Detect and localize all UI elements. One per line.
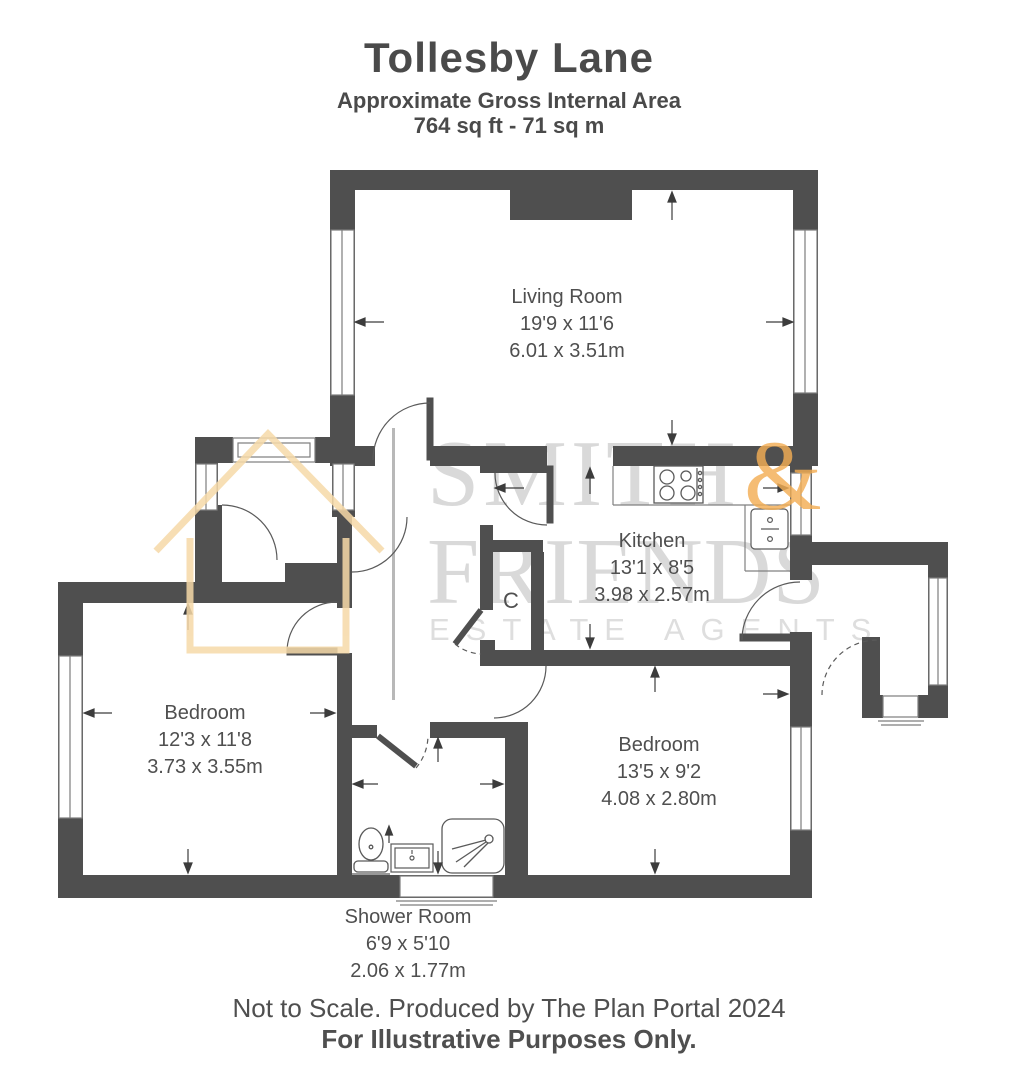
kitchen-label: Kitchen 13'1 x 8'5 3.98 x 2.57m	[594, 528, 710, 609]
room-size-metric: 6.01 x 3.51m	[509, 338, 625, 365]
room-size-imperial: 6'9 x 5'10	[345, 931, 472, 958]
house-watermark-icon	[0, 0, 1018, 1080]
living-room-label: Living Room 19'9 x 11'6 6.01 x 3.51m	[509, 284, 625, 365]
room-size-imperial: 13'1 x 8'5	[594, 555, 710, 582]
room-name: Living Room	[509, 284, 625, 311]
bedroom-right-label: Bedroom 13'5 x 9'2 4.08 x 2.80m	[601, 732, 717, 813]
room-size-metric: 3.73 x 3.55m	[147, 754, 263, 781]
room-name: Shower Room	[345, 904, 472, 931]
room-name: Bedroom	[601, 732, 717, 759]
room-size-metric: 2.06 x 1.77m	[345, 958, 472, 985]
shower-room-label: Shower Room 6'9 x 5'10 2.06 x 1.77m	[345, 904, 472, 985]
room-name: Kitchen	[594, 528, 710, 555]
floorplan-page: Tollesby Lane Approximate Gross Internal…	[0, 0, 1018, 1080]
bedroom-left-label: Bedroom 12'3 x 11'8 3.73 x 3.55m	[147, 700, 263, 781]
room-name: Bedroom	[147, 700, 263, 727]
cupboard-label: C	[503, 588, 519, 614]
room-size-imperial: 19'9 x 11'6	[509, 311, 625, 338]
room-size-metric: 3.98 x 2.57m	[594, 582, 710, 609]
room-size-imperial: 13'5 x 9'2	[601, 759, 717, 786]
room-size-imperial: 12'3 x 11'8	[147, 727, 263, 754]
watermark-ampersand: &	[744, 418, 822, 533]
room-size-metric: 4.08 x 2.80m	[601, 786, 717, 813]
